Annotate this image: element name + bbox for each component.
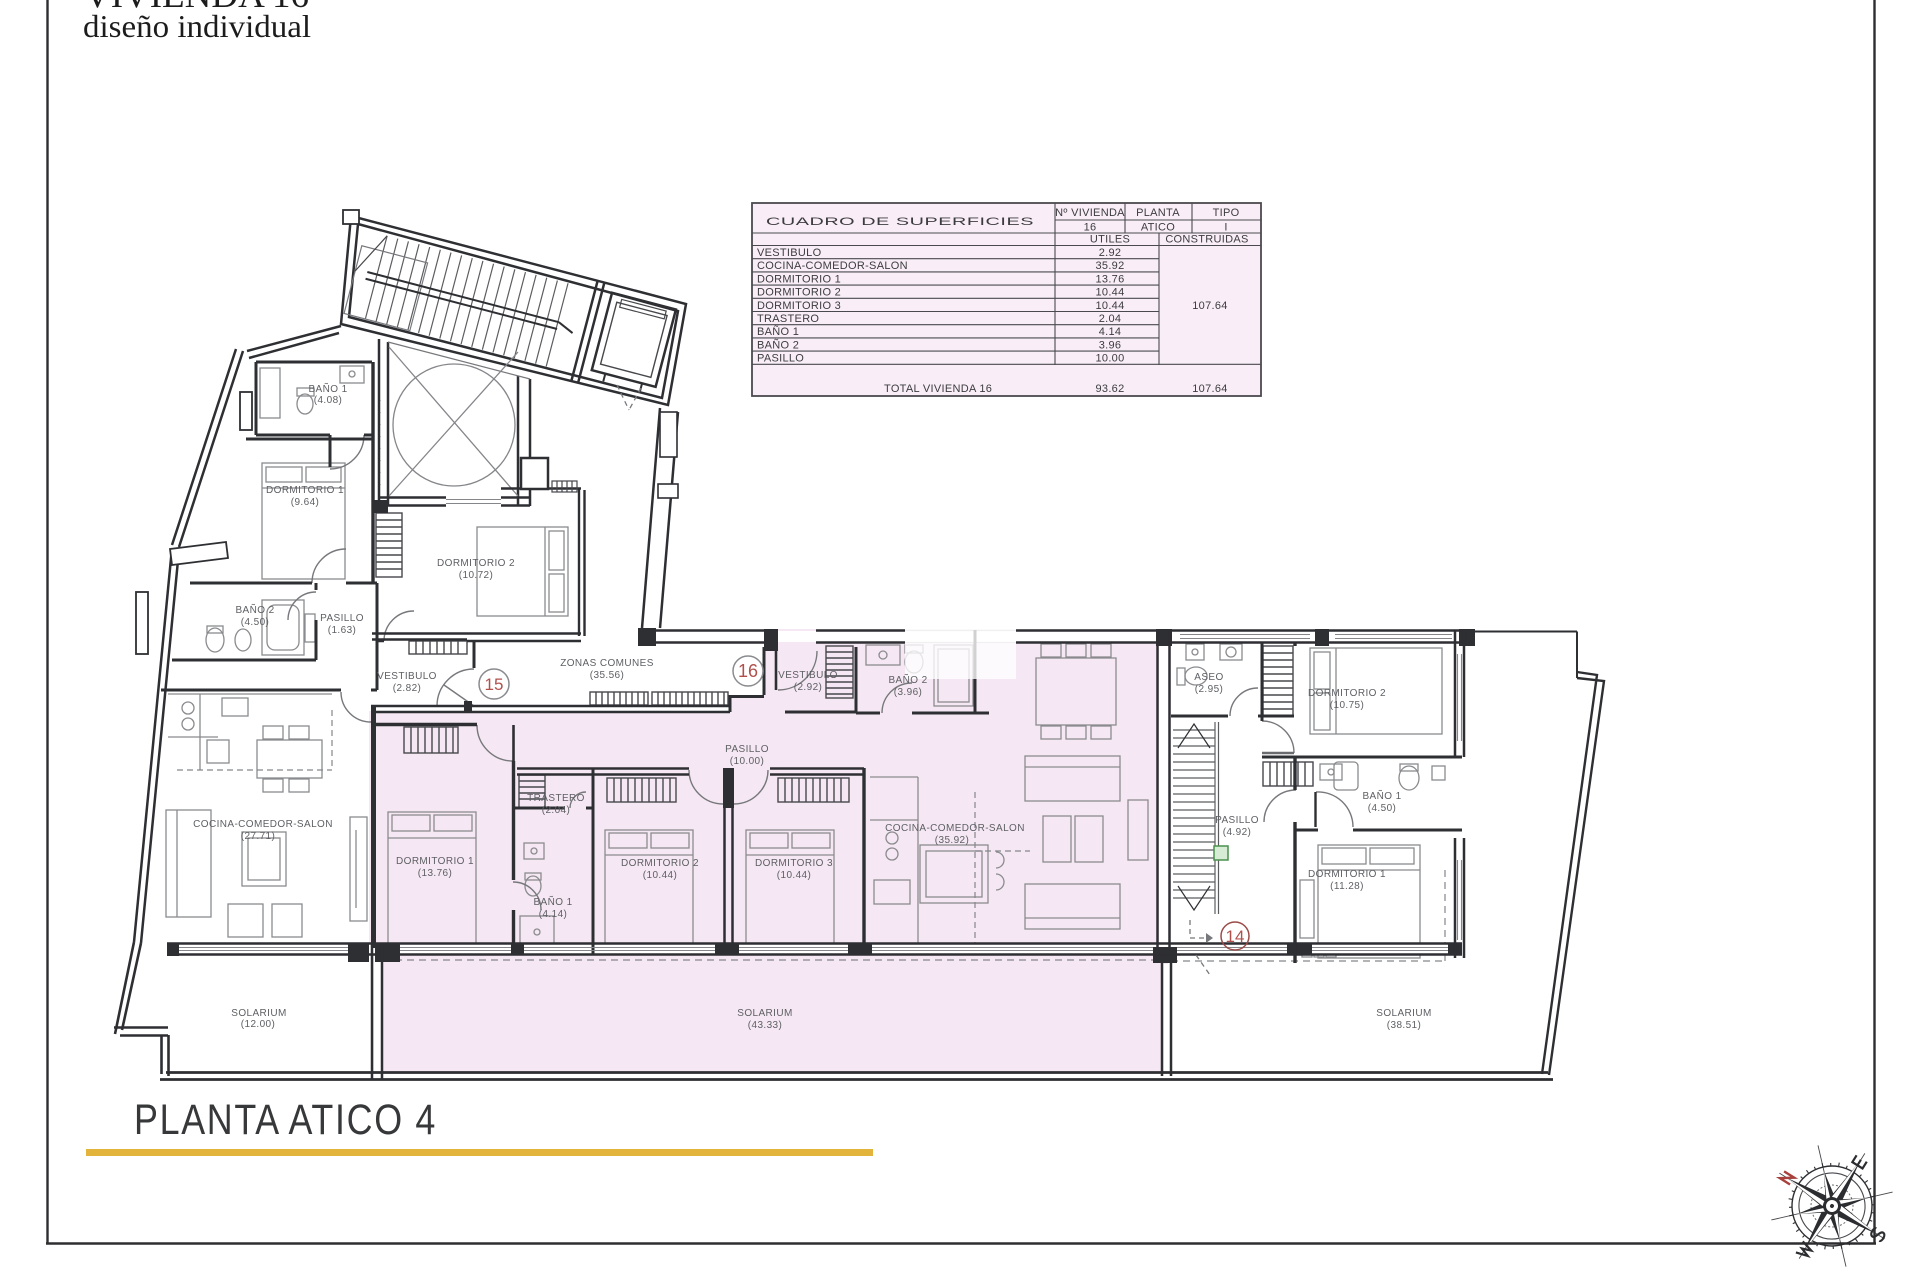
svg-text:PASILLO(10.00): PASILLO(10.00) [725,744,769,767]
svg-text:3.96: 3.96 [1099,339,1122,351]
svg-text:COCINA-COMEDOR-SALON: COCINA-COMEDOR-SALON [757,260,908,272]
svg-text:ATICO: ATICO [1141,222,1175,234]
svg-text:ASEO(2.95): ASEO(2.95) [1194,672,1223,695]
svg-text:I: I [1224,222,1227,234]
svg-text:CONSTRUIDAS: CONSTRUIDAS [1165,234,1248,246]
svg-text:DORMITORIO 3: DORMITORIO 3 [757,300,841,312]
svg-text:10.00: 10.00 [1095,353,1124,365]
svg-text:TIPO: TIPO [1213,207,1240,219]
svg-text:BAÑO 1(4.14): BAÑO 1(4.14) [533,895,572,920]
svg-text:BAÑO 2(4.50): BAÑO 2(4.50) [235,603,274,628]
svg-text:14: 14 [1226,927,1245,946]
svg-text:107.64: 107.64 [1192,300,1227,312]
svg-text:DORMITORIO 2: DORMITORIO 2 [757,287,841,299]
svg-text:BAÑO 1: BAÑO 1 [757,325,799,338]
svg-text:PASILLO: PASILLO [757,353,804,365]
svg-text:15: 15 [485,675,504,694]
svg-text:13.76: 13.76 [1095,273,1124,285]
svg-text:BAÑO 2(3.96): BAÑO 2(3.96) [888,673,927,698]
svg-text:DORMITORIO 1: DORMITORIO 1 [757,273,841,285]
svg-text:BAÑO 1(4.08): BAÑO 1(4.08) [308,382,347,406]
svg-text:BAÑO 1(4.50): BAÑO 1(4.50) [1362,789,1401,814]
svg-text:107.64: 107.64 [1192,383,1227,395]
svg-text:16: 16 [738,661,758,681]
svg-text:BAÑO 2: BAÑO 2 [757,338,799,351]
svg-text:93.62: 93.62 [1095,383,1124,395]
svg-text:VESTIBULO: VESTIBULO [757,247,822,259]
svg-text:2.04: 2.04 [1099,313,1122,325]
svg-text:10.44: 10.44 [1095,300,1124,312]
svg-text:TOTAL VIVIENDA 16: TOTAL VIVIENDA 16 [884,383,992,395]
svg-text:PLANTA ATICO 4: PLANTA ATICO 4 [134,1096,437,1144]
svg-text:2.92: 2.92 [1099,247,1122,259]
svg-text:16: 16 [1084,222,1097,234]
svg-text:PLANTA: PLANTA [1136,207,1180,219]
svg-text:CUADRO DE SUPERFICIES: CUADRO DE SUPERFICIES [766,216,1034,228]
svg-text:diseño individual: diseño individual [83,8,311,44]
svg-text:10.44: 10.44 [1095,287,1124,299]
svg-text:TRASTERO: TRASTERO [757,313,819,325]
svg-text:35.92: 35.92 [1095,260,1124,272]
svg-text:UTILES: UTILES [1090,234,1130,246]
svg-text:Nº VIVIENDA: Nº VIVIENDA [1055,207,1125,219]
svg-text:4.14: 4.14 [1099,326,1122,338]
